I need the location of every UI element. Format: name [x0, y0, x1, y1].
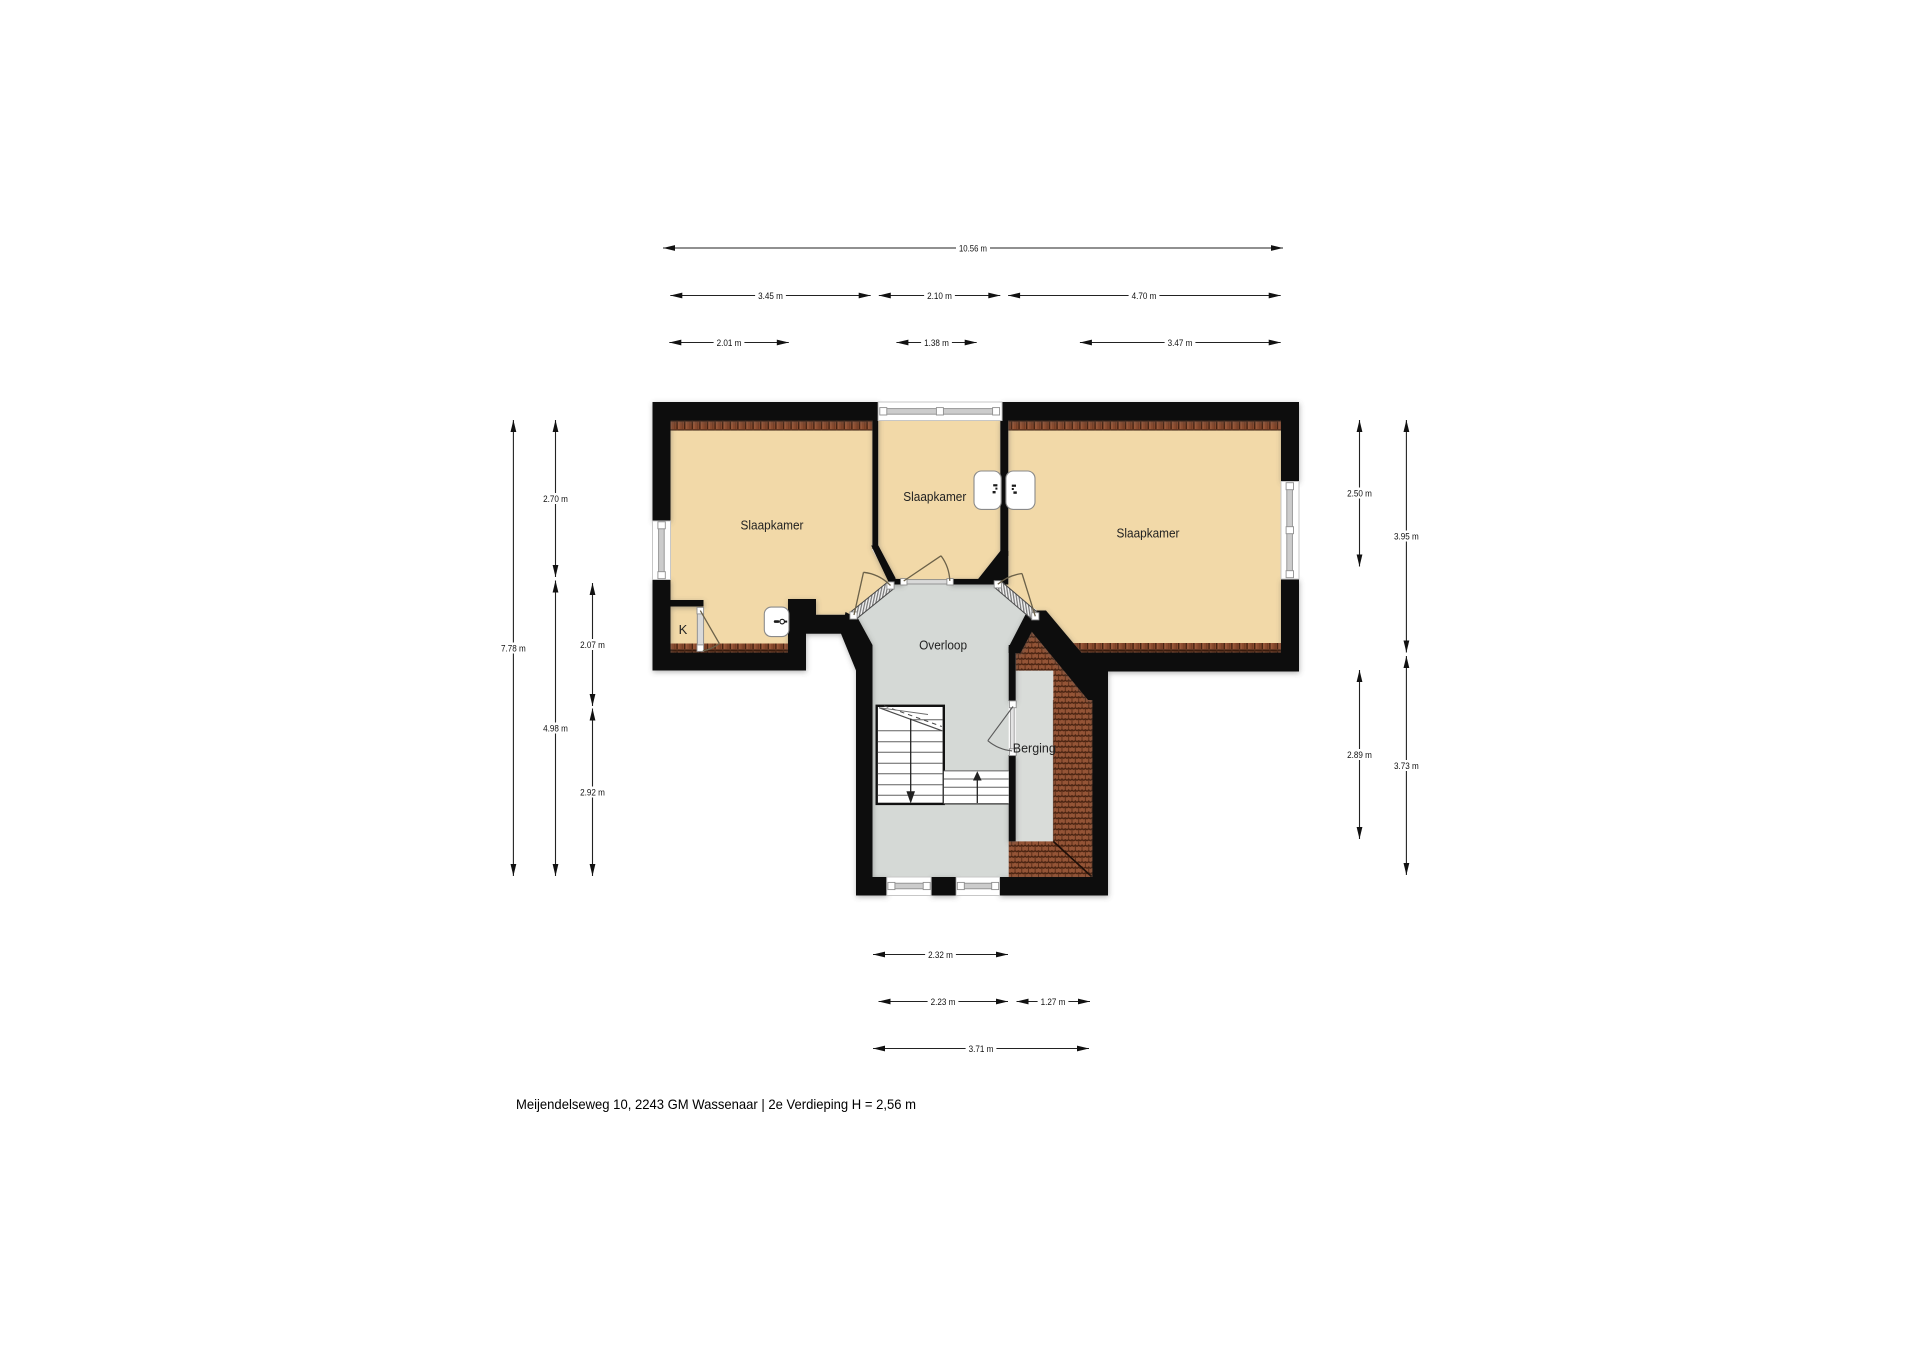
svg-text:Slaapkamer: Slaapkamer [741, 518, 805, 533]
svg-text:2.32 m: 2.32 m [928, 950, 953, 961]
svg-text:3.71 m: 3.71 m [969, 1044, 994, 1055]
svg-text:7.78 m: 7.78 m [501, 643, 526, 654]
svg-text:10.56 m: 10.56 m [959, 243, 987, 254]
svg-text:3.73 m: 3.73 m [1394, 761, 1419, 772]
svg-text:1.27 m: 1.27 m [1041, 997, 1066, 1008]
svg-text:4.70 m: 4.70 m [1132, 291, 1157, 302]
svg-text:2.50 m: 2.50 m [1347, 488, 1372, 499]
svg-text:K: K [679, 622, 688, 637]
svg-text:2.07 m: 2.07 m [580, 640, 605, 651]
svg-text:4.98 m: 4.98 m [543, 723, 568, 734]
svg-text:2.10 m: 2.10 m [927, 291, 952, 302]
svg-text:Slaapkamer: Slaapkamer [903, 489, 967, 504]
svg-text:1.38 m: 1.38 m [924, 338, 949, 349]
svg-text:Berging: Berging [1013, 741, 1056, 756]
svg-text:Overloop: Overloop [919, 638, 967, 653]
svg-text:2.92 m: 2.92 m [580, 787, 605, 798]
svg-text:Slaapkamer: Slaapkamer [1117, 526, 1181, 541]
svg-text:2.23 m: 2.23 m [931, 997, 956, 1008]
svg-text:3.95 m: 3.95 m [1394, 531, 1419, 542]
svg-text:Meijendelseweg 10, 2243 GM Was: Meijendelseweg 10, 2243 GM Wassenaar | 2… [516, 1096, 916, 1112]
svg-text:3.47 m: 3.47 m [1168, 338, 1193, 349]
svg-text:3.45 m: 3.45 m [758, 291, 783, 302]
svg-text:2.70 m: 2.70 m [543, 494, 568, 505]
svg-text:2.01 m: 2.01 m [717, 338, 742, 349]
svg-text:2.89 m: 2.89 m [1347, 750, 1372, 761]
